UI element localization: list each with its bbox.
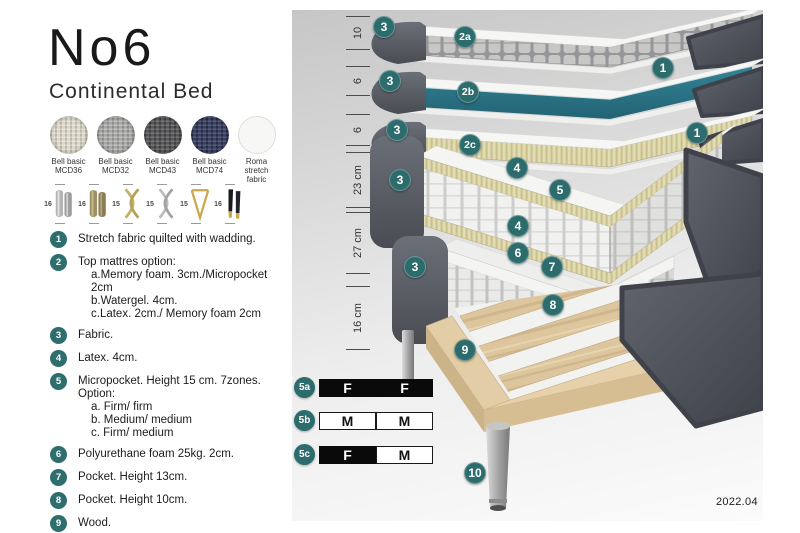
leg-option: 15 [112,184,143,224]
feature-number-badge: 5 [50,373,67,390]
firmness-badge: 5a [294,377,315,398]
layer-badge-2b: 2b [457,81,479,103]
layer-badge-8: 8 [542,294,564,316]
layer-badge-3: 3 [389,169,411,191]
leg-option: 16 [214,184,245,224]
fabric-swatch-label: Bell basic MCD36 [51,157,85,175]
feature-item: 6 Polyurethane foam 25kg. 2cm. [50,446,288,463]
feature-number-badge: 4 [50,350,67,367]
layer-badge-3: 3 [373,16,395,38]
feature-item: 3 Fabric. [50,327,288,344]
firmness-badge: 5b [294,410,315,431]
fabric-swatch-icon [144,116,182,154]
diagram-panel: 10 6 6 23 cm 27 cm 16 cm 3 2a 1 3 2b 3 2… [292,10,763,521]
firmness-cell: M [319,412,376,430]
layer-badge-4: 4 [507,215,529,237]
layer-badge-2c: 2c [459,134,481,156]
fabric-swatch-icon [50,116,88,154]
feature-item: 8 Pocket. Height 10cm. [50,492,288,509]
infographic: No6 Continental Bed Bell basic MCD36 Bel… [0,0,800,533]
fabric-swatch-icon [97,116,135,154]
feature-item: 1 Stretch fabric quilted with wadding. [50,231,288,248]
fabric-swatch: Bell basic MCD43 [140,116,185,184]
fabric-swatch: Bell basic MCD74 [187,116,232,184]
fabric-swatch: Bell basic MCD36 [46,116,91,184]
firmness-cell: F [376,379,433,397]
measurement-10: 10 [346,16,370,50]
layer-badge-1: 1 [686,122,708,144]
fabric-swatch: Bell basic MCD32 [93,116,138,184]
firmness-cell: M [376,412,433,430]
leg-taper-black-gold-icon [223,186,245,222]
firmness-row-5a: 5a F F [294,377,433,398]
fabric-swatch: Roma stretch fabric [234,116,279,184]
fabric-swatch-label: Bell basic MCD74 [192,157,226,175]
fabric-swatch-label: Roma stretch fabric [234,157,279,184]
fabric-swatch-label: Bell basic MCD43 [145,157,179,175]
layer-badge-7: 7 [541,256,563,278]
fabric-swatch-label: Bell basic MCD32 [98,157,132,175]
feature-number-badge: 1 [50,231,67,248]
layer-badge-3: 3 [386,119,408,141]
layer-badge-9: 9 [454,339,476,361]
measurement-6b: 6 [346,114,370,146]
leg-option: 15 [180,184,211,224]
measurement-27cm: 27 cm [346,212,370,274]
page-title: No6 [48,18,155,78]
feature-number-badge: 9 [50,515,67,532]
measurement-6a: 6 [346,66,370,96]
feature-item: 4 Latex. 4cm. [50,350,288,367]
feature-item: 7 Pocket. Height 13cm. [50,469,288,486]
feature-item: 9 Wood. [50,515,288,532]
firmness-row-5b: 5b M M [294,410,433,431]
feature-number-badge: 7 [50,469,67,486]
firmness-cell: M [376,446,433,464]
leg-options: 16 16 [44,184,245,224]
leg-cylinder-silver-icon [53,186,75,222]
info-column: No6 Continental Bed Bell basic MCD36 Bel… [0,0,292,533]
firmness-cell: F [319,446,376,464]
leg-option: 16 [44,184,75,224]
measurement-23cm: 23 cm [346,152,370,208]
feature-list: 1 Stretch fabric quilted with wadding. 2… [50,231,288,533]
leg-cross-silver-icon [155,186,177,222]
feature-number-badge: 8 [50,492,67,509]
layer-badge-1: 1 [652,57,674,79]
firmness-badge: 5c [294,444,315,465]
layer-badge-6: 6 [507,242,529,264]
leg-option: 15 [146,184,177,224]
firmness-cell: F [319,379,376,397]
feature-number-badge: 2 [50,254,67,271]
leg-cross-gold-icon [121,186,143,222]
feature-number-badge: 3 [50,327,67,344]
layer-badge-4: 4 [506,157,528,179]
layer-badge-2a: 2a [454,26,476,48]
version-label: 2022.04 [716,496,758,508]
layer-badge-10: 10 [464,462,486,484]
leg-cylinder-bronze-icon [87,186,109,222]
feature-number-badge: 6 [50,446,67,463]
layer-badge-5: 5 [549,179,571,201]
fabric-swatch-icon [238,116,276,154]
layer-badge-3: 3 [379,70,401,92]
page-subtitle: Continental Bed [49,80,213,104]
feature-item: 2 Top mattres option: a.Memory foam. 3cm… [50,254,288,321]
firmness-row-5c: 5c F M [294,444,433,465]
fabric-swatch-icon [191,116,229,154]
layer-badge-3: 3 [404,256,426,278]
leg-hairpin-gold-icon [189,186,211,222]
feature-item: 5 Micropocket. Height 15 cm. 7zones. Opt… [50,373,288,440]
leg-option: 16 [78,184,109,224]
measurement-16cm: 16 cm [346,286,370,350]
fabric-swatches: Bell basic MCD36 Bell basic MCD32 Bell b… [46,116,279,184]
